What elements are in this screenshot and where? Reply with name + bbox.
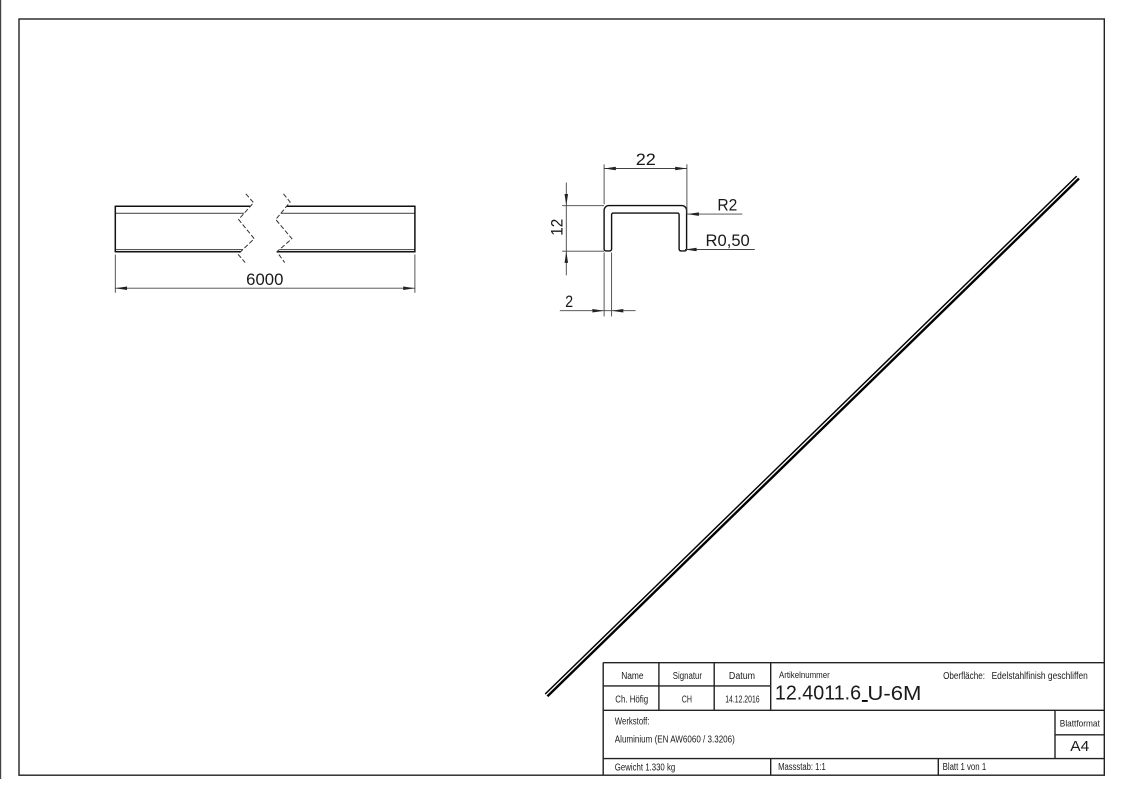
svg-text:12.4011.6: 12.4011.6 bbox=[775, 682, 861, 704]
svg-text:14.12.2016: 14.12.2016 bbox=[725, 695, 760, 706]
svg-text:Signatur: Signatur bbox=[673, 671, 703, 682]
svg-text:Datum: Datum bbox=[729, 671, 755, 682]
svg-text:6000: 6000 bbox=[246, 271, 283, 289]
svg-text:Edelstahlfinish geschliffen: Edelstahlfinish geschliffen bbox=[992, 671, 1088, 682]
svg-text:Massstab: 1:1: Massstab: 1:1 bbox=[778, 762, 826, 773]
svg-text:U-6M: U-6M bbox=[867, 683, 921, 705]
svg-text:22: 22 bbox=[636, 150, 656, 169]
svg-text:12: 12 bbox=[549, 219, 567, 236]
svg-text:R2: R2 bbox=[717, 196, 737, 215]
svg-text:CH: CH bbox=[682, 695, 692, 706]
svg-text:Blatt 1 von 1: Blatt 1 von 1 bbox=[943, 762, 987, 773]
svg-text:R0,50: R0,50 bbox=[706, 231, 750, 250]
svg-text:Name: Name bbox=[621, 671, 644, 682]
svg-text:2: 2 bbox=[565, 293, 573, 311]
svg-text:Aluminium (EN AW6060 / 3.3206): Aluminium (EN AW6060 / 3.3206) bbox=[615, 735, 735, 746]
svg-text:Oberfläche:: Oberfläche: bbox=[943, 671, 985, 682]
svg-text:Ch. Höfig: Ch. Höfig bbox=[615, 695, 648, 706]
svg-text:A4: A4 bbox=[1070, 739, 1089, 755]
svg-text:Artikelnummer: Artikelnummer bbox=[779, 670, 830, 680]
svg-text:Blattformat: Blattformat bbox=[1060, 719, 1100, 729]
svg-text:Gewicht 1.330 kg: Gewicht 1.330 kg bbox=[615, 762, 675, 773]
svg-text:Werkstoff:: Werkstoff: bbox=[615, 716, 650, 727]
